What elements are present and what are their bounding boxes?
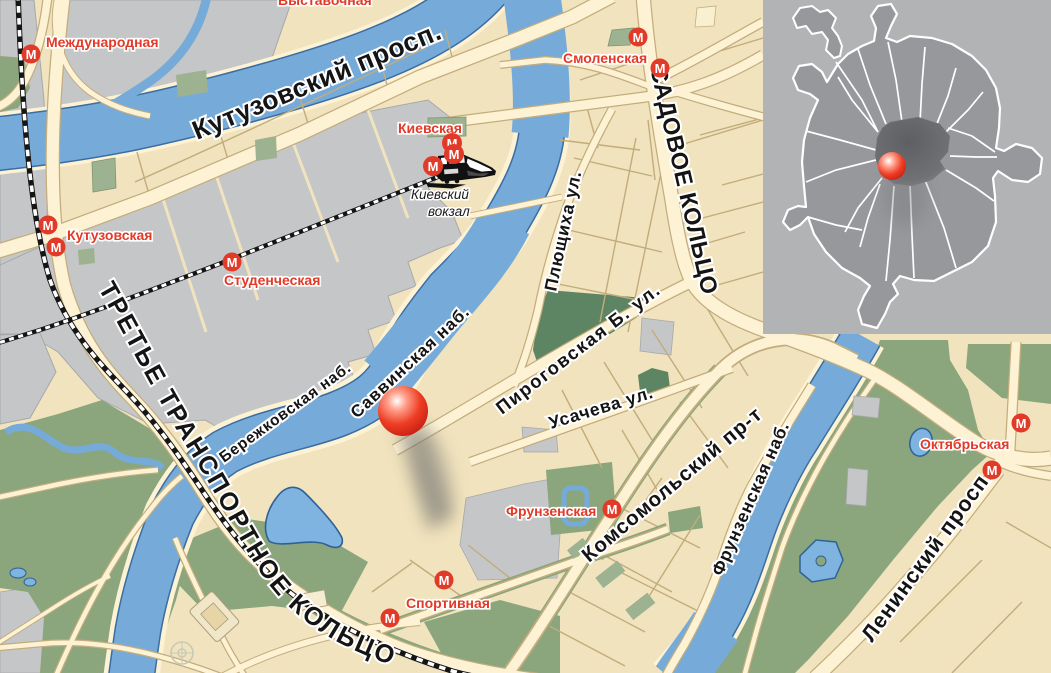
svg-text:М: М [987,463,998,478]
svg-text:М: М [26,47,37,62]
svg-text:Студенческая: Студенческая [224,272,320,288]
svg-text:М: М [449,147,460,162]
svg-text:М: М [655,61,666,76]
svg-text:Фрунзенская: Фрунзенская [506,503,596,519]
svg-text:Смоленская: Смоленская [563,50,647,66]
svg-text:М: М [51,240,62,255]
svg-text:М: М [428,159,439,174]
svg-text:Спортивная: Спортивная [406,595,490,611]
svg-text:М: М [439,573,450,588]
svg-text:Международная: Международная [46,34,159,50]
svg-text:М: М [43,218,54,233]
svg-text:М: М [633,30,644,45]
svg-text:М: М [385,611,396,626]
svg-text:М: М [607,502,618,517]
svg-text:вокзал: вокзал [428,204,470,219]
svg-text:Октябрьская: Октябрьская [920,436,1009,452]
svg-text:Киевский: Киевский [411,187,469,202]
svg-text:М: М [227,255,238,270]
svg-text:М: М [1016,416,1027,431]
svg-text:Кутузовская: Кутузовская [67,227,152,243]
svg-text:Выставочная: Выставочная [278,0,372,8]
